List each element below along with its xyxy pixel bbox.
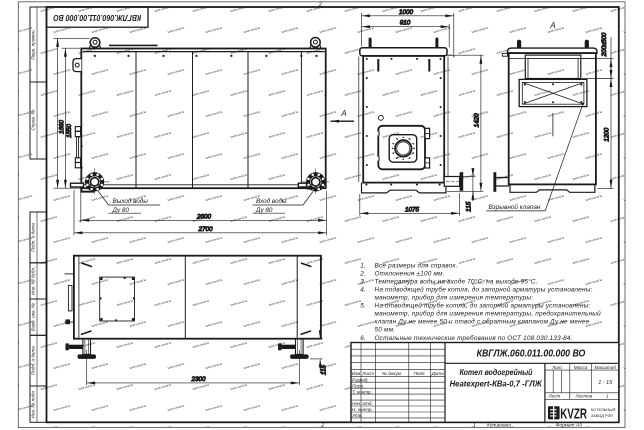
svg-text:клапан Ду не менее 50 и отвод: клапан Ду не менее 50 и отвод с обратным… <box>375 318 590 326</box>
svg-text:Лист: Лист <box>548 394 561 399</box>
svg-text:1200: 1200 <box>603 127 610 141</box>
svg-text:2300: 2300 <box>190 376 206 383</box>
svg-text:910: 910 <box>400 20 411 27</box>
svg-text:Температура воды на входе 70°С: Температура воды на входе 70°С, на выход… <box>375 277 538 285</box>
svg-text:Листов: Листов <box>575 394 593 399</box>
svg-text:Отклонения ±100 мм.: Отклонения ±100 мм. <box>375 270 445 277</box>
svg-text:Heatexpert-КВа-0,7 -ГЛЖ: Heatexpert-КВа-0,7 -ГЛЖ <box>450 379 543 388</box>
svg-text:2700: 2700 <box>197 226 213 233</box>
svg-text:Подп. и дата: Подп. и дата <box>31 223 36 252</box>
svg-text:Выход воды: Выход воды <box>113 197 149 205</box>
svg-text:115: 115 <box>320 364 327 375</box>
svg-text:4.: 4. <box>360 287 366 294</box>
svg-text:1 : 15: 1 : 15 <box>598 380 613 386</box>
svg-text:манометр, прибор для измерения: манометр, прибор для измерения температу… <box>375 310 602 318</box>
svg-text:Копировал: Копировал <box>487 423 511 429</box>
svg-text:Инв. № дубл.: Инв. № дубл. <box>31 267 36 295</box>
svg-text:Справ. №: Справ. № <box>31 110 36 131</box>
svg-text:KVZR: KVZR <box>560 406 587 423</box>
svg-text:Разраб.: Разраб. <box>352 377 369 382</box>
svg-text:Н. контр.: Н. контр. <box>352 407 373 412</box>
svg-text:Остальные технические требован: Остальные технические требования по ОСТ … <box>375 334 573 342</box>
svg-text:Дата: Дата <box>431 371 445 376</box>
svg-text:50 мм.: 50 мм. <box>375 327 396 334</box>
svg-text:Утв.: Утв. <box>352 413 362 418</box>
svg-text:А: А <box>549 21 556 30</box>
svg-text:Перв. примен.: Перв. примен. <box>31 29 36 60</box>
svg-text:ЗАВОД РЭП: ЗАВОД РЭП <box>591 413 614 418</box>
svg-text:1: 1 <box>606 394 609 399</box>
svg-text:Подп.: Подп. <box>413 371 425 376</box>
svg-text:КВГЛЖ.060.011.00.000 ВО: КВГЛЖ.060.011.00.000 ВО <box>477 349 586 360</box>
svg-text:Все размеры для справок.: Все размеры для справок. <box>375 261 458 269</box>
svg-text:Лист: Лист <box>361 371 374 376</box>
svg-text:Формат А3: Формат А3 <box>556 423 583 429</box>
svg-text:Изм: Изм <box>352 371 361 376</box>
svg-text:2: 2 <box>318 2 322 8</box>
svg-text:Взрывной клапан: Взрывной клапан <box>489 203 541 211</box>
svg-text:Подп. и дата: Подп. и дата <box>31 346 36 375</box>
svg-text:№ докум.: № докум. <box>382 371 402 376</box>
svg-text:На подводящей трубе котла, до: На подводящей трубе котла, до запорной а… <box>375 286 593 294</box>
svg-text:1550: 1550 <box>66 124 73 138</box>
svg-text:Взам. инв. №: Взам. инв. № <box>31 303 36 331</box>
svg-text:Инв. № подл.: Инв. № подл. <box>31 390 36 419</box>
svg-text:5.: 5. <box>360 303 366 310</box>
svg-text:1420: 1420 <box>474 113 481 128</box>
svg-text:На отводящей трубе котла, до з: На отводящей трубе котла, до запорной ар… <box>375 302 591 310</box>
svg-text:1000: 1000 <box>399 9 414 16</box>
svg-text:Котел водогрейный: Котел водогрейный <box>460 368 533 377</box>
svg-text:Масса: Масса <box>574 365 588 370</box>
svg-text:115: 115 <box>465 201 472 212</box>
svg-text:3.: 3. <box>360 278 366 285</box>
svg-text:2.: 2. <box>359 270 366 277</box>
svg-text:1075: 1075 <box>405 206 420 213</box>
svg-text:1660: 1660 <box>59 120 66 134</box>
svg-text:1: 1 <box>473 423 476 429</box>
svg-text:2600: 2600 <box>196 213 212 220</box>
svg-text:Вход воды: Вход воды <box>256 197 287 205</box>
svg-text:Масштаб: Масштаб <box>594 365 616 370</box>
svg-text:Т. контр.: Т. контр. <box>352 389 372 394</box>
svg-text:Нач. отд.: Нач. отд. <box>352 401 373 406</box>
svg-text:Пров.: Пров. <box>352 383 364 388</box>
svg-text:КОТЕЛЬНЫЙ: КОТЕЛЬНЫЙ <box>591 407 616 412</box>
svg-text:200х500: 200х500 <box>601 32 608 57</box>
svg-text:1.: 1. <box>360 262 366 269</box>
svg-text:КВГЛЖ.060.011.00.000 ВО: КВГЛЖ.060.011.00.000 ВО <box>53 13 142 22</box>
svg-text:Лит.: Лит. <box>551 365 563 370</box>
svg-text:6.: 6. <box>360 335 366 342</box>
svg-text:2: 2 <box>321 423 325 429</box>
svg-text:манометр, прибор для измерения: манометр, прибор для измерения температу… <box>375 294 534 302</box>
svg-text:А: А <box>340 109 347 118</box>
